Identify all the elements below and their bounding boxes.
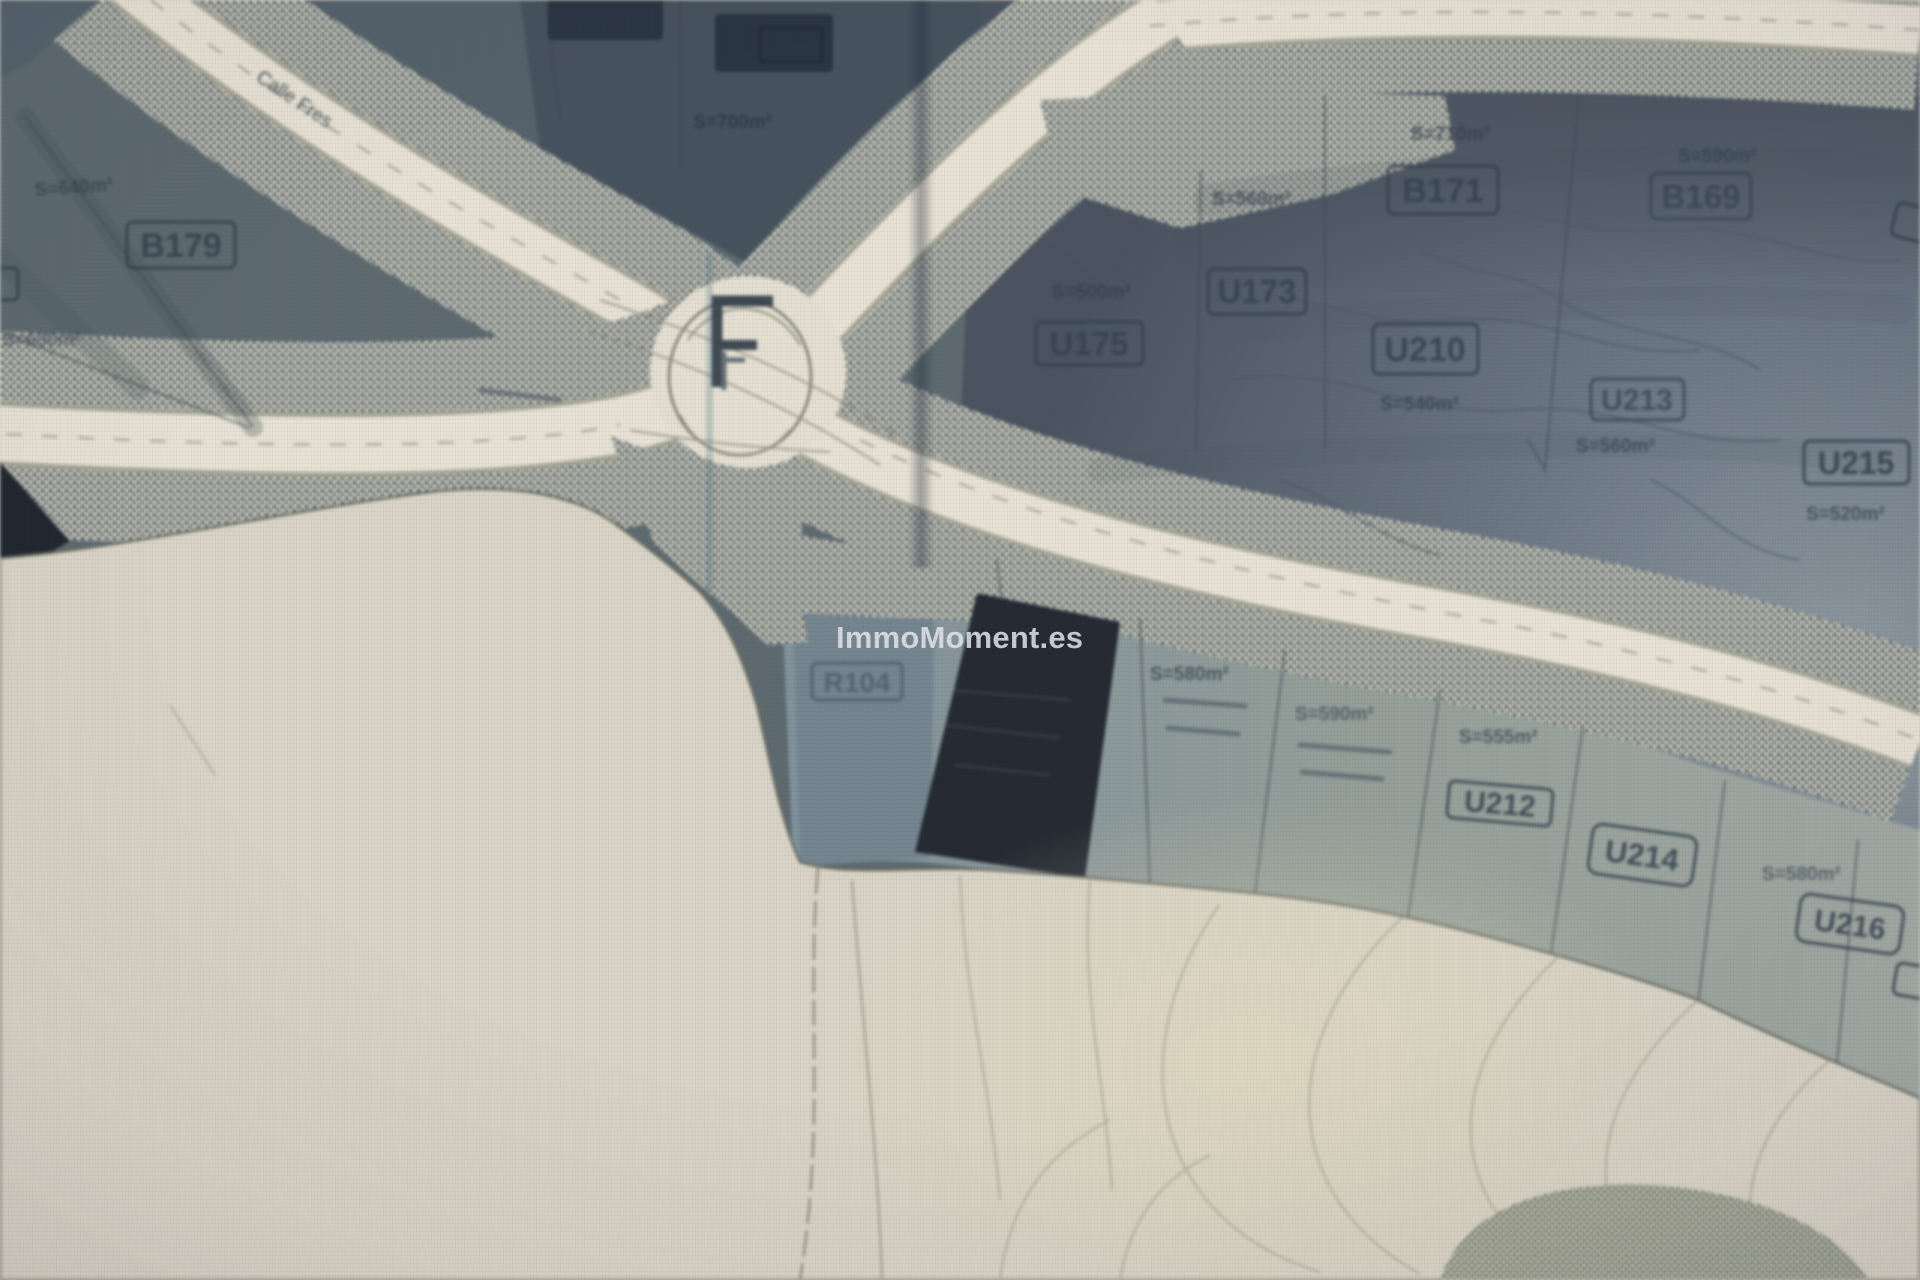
svg-text:S=520m²: S=520m² [1806,504,1885,525]
svg-text:S=560m²: S=560m² [1576,436,1655,457]
svg-text:S=600m²: S=600m² [2,330,81,351]
svg-text:S=580m²: S=580m² [1762,864,1841,885]
svg-text:U173: U173 [1218,273,1297,310]
svg-text:U210: U210 [1384,331,1465,369]
svg-text:S=540m²: S=540m² [1380,394,1459,415]
svg-text:S=700m²: S=700m² [693,112,772,133]
svg-text:R104: R104 [824,667,891,698]
svg-text:B171: B171 [1402,172,1483,210]
svg-text:U215: U215 [1818,445,1895,481]
svg-text:S=590m²: S=590m² [1295,704,1374,725]
svg-text:S=500m²: S=500m² [1052,282,1131,303]
svg-text:B179: B179 [140,227,221,265]
svg-text:U212: U212 [1463,785,1537,824]
svg-text:B169: B169 [1662,178,1741,215]
svg-text:S=560m²: S=560m² [1212,189,1291,210]
svg-text:S=710m²: S=710m² [1411,124,1490,145]
svg-text:S=580m²: S=580m² [1150,664,1229,685]
svg-text:U175: U175 [1050,325,1129,362]
svg-text:S=555m²: S=555m² [1459,727,1538,748]
svg-text:U213: U213 [1601,384,1673,417]
svg-text:S=590m²: S=590m² [1678,146,1757,167]
